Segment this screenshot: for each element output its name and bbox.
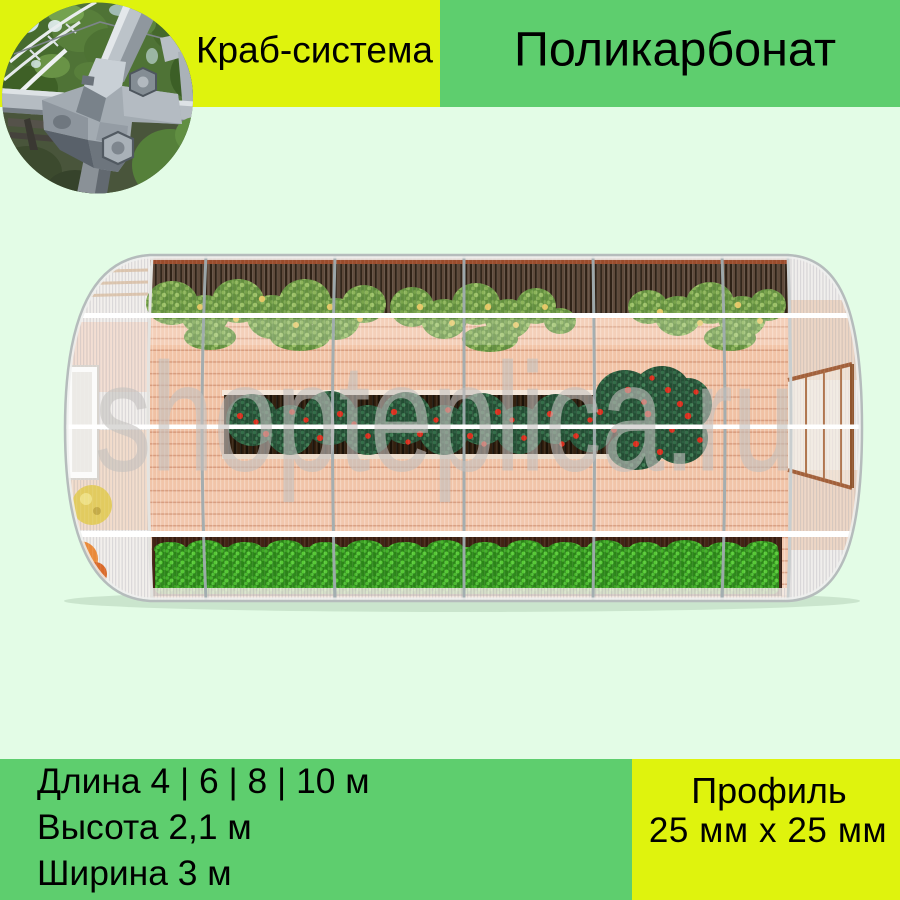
svg-text:Краб-система: Краб-система [196, 29, 433, 70]
svg-text:Ширина 3 м: Ширина 3 м [37, 853, 232, 893]
svg-text:shopteplica.ru: shopteplica.ru [95, 332, 795, 503]
svg-text:Длина 4 | 6 | 8 | 10 м: Длина 4 | 6 | 8 | 10 м [37, 761, 370, 801]
svg-text:25 мм x 25 мм: 25 мм x 25 мм [649, 811, 887, 850]
svg-text:Поликарбонат: Поликарбонат [514, 22, 836, 76]
svg-text:Высота 2,1 м: Высота 2,1 м [37, 807, 252, 847]
svg-text:Профиль: Профиль [691, 770, 846, 811]
